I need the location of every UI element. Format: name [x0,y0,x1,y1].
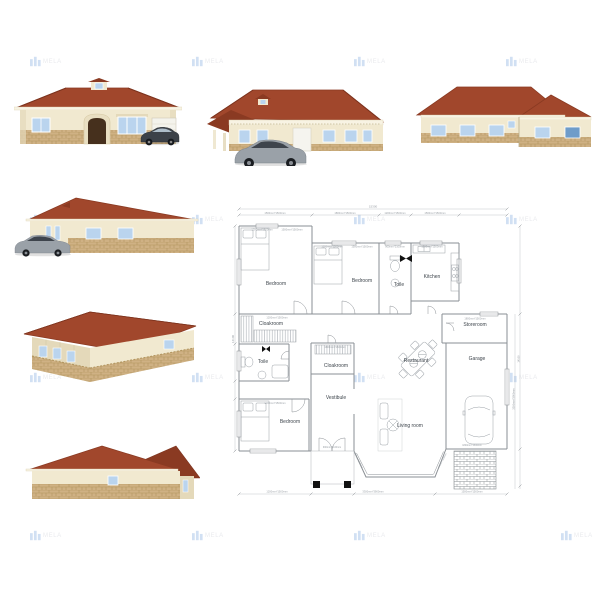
render-rear-elevation [413,81,592,164]
patio-brick [454,451,496,489]
entry-door [293,128,311,151]
svg-text:3300mm*3900mm: 3300mm*3900mm [511,388,515,409]
svg-text:15300: 15300 [369,205,378,209]
doors [281,301,454,451]
eaves-band [26,219,198,221]
stone-band [32,484,180,499]
svg-text:1200mm*1500mm: 1200mm*1500mm [266,490,287,494]
entry-door [84,114,110,144]
svg-text:1800mm*1500mm: 1800mm*1500mm [464,317,485,321]
garage-car-icon [463,396,495,444]
watermark-text: MELA [43,59,62,65]
svg-text:1500mm*1500mm: 1500mm*1500mm [281,228,302,232]
watermark: MELA [192,56,224,67]
render-side-elevation-car [12,188,202,264]
room-label-kitchen: Kitchen [424,274,441,280]
buildings-icon [354,530,365,541]
dormer [88,78,110,90]
annex [180,476,194,499]
window [108,476,118,485]
svg-text:1200mm*1500mm: 1200mm*1500mm [266,316,287,320]
buildings-icon [506,56,517,67]
walls [239,226,507,477]
room-label-restaurant: Restaurant [404,358,429,364]
watermark: MELA [354,530,386,541]
buildings-icon [192,530,203,541]
svg-text:3300mm*3900mm: 3300mm*3900mm [362,490,383,494]
room-label-vestibule: Vestibule [326,395,347,401]
wardrobe-rack-icon [241,316,351,354]
buildings-icon [30,530,41,541]
watermark: MELA [561,530,593,541]
room-label-garage: Garage [469,356,486,362]
svg-text:1500mm*1500mm: 1500mm*1500mm [424,211,445,215]
porch-columns [213,130,226,151]
svg-text:1800mm*1500mm: 1800mm*1500mm [334,211,355,215]
svg-text:14100: 14100 [232,334,235,343]
buildings-icon [192,56,203,67]
stone-band [68,238,194,253]
bay-window-wall [354,449,446,477]
eaves-band [14,107,182,110]
svg-text:1200mm*1500mm: 1200mm*1500mm [264,401,285,405]
render-side-elevation [24,436,200,514]
roof [16,88,180,108]
watermark: MELA [30,56,62,67]
windows [46,226,133,240]
buildings-icon [354,56,365,67]
svg-text:1800mm*1500mm: 1800mm*1500mm [462,444,482,447]
room-label-toile-2: Toile [258,359,269,365]
room-label-toile-1: Toile [394,282,405,288]
porch-column [313,481,320,488]
room-label-cloakroom-1: Cloakroom [259,321,283,327]
floor-plan: 15300 1500mm*1500mm 1800mm*1500mm 1200mm… [232,199,524,501]
room-label-bedroom-2: Bedroom [352,278,372,284]
bed-icon [241,228,269,270]
bay-window [116,114,148,134]
plan-windows [237,224,509,475]
render-perspective-front [205,78,387,166]
room-label-storeroom: Storeroom [463,322,486,328]
room-label-bedroom-3: Bedroom [280,419,300,425]
roof [28,198,196,220]
room-label-bedroom-1: Bedroom [266,281,286,287]
window-left [32,118,50,132]
watermark: MELA [192,530,224,541]
watermark: MELA [506,56,538,67]
svg-text:14100: 14100 [516,355,520,363]
porch [311,451,354,484]
buildings-icon [30,56,41,67]
svg-text:1200mm*1500mm: 1200mm*1500mm [384,211,405,215]
design-sheet: MELA MELA MELA MELA MELA MELA MELA MELA … [0,0,600,600]
eaves-band [26,469,178,471]
watermark: MELA [30,530,62,541]
svg-text:1500mm*1500mm: 1500mm*1500mm [461,490,482,494]
kitchen-counter-icon [413,245,459,291]
buildings-icon [561,530,572,541]
render-front-elevation [14,78,182,162]
roof [417,87,591,117]
room-label-living-room: Living room [397,423,423,429]
render-corner-perspective [16,306,201,396]
svg-text:1500mm*1500mm: 1500mm*1500mm [264,211,285,215]
watermark: MELA [354,56,386,67]
porch-column [344,481,351,488]
room-label-cloakroom-2: Cloakroom [324,363,348,369]
bed-icon [241,401,269,441]
bed-icon [314,246,342,284]
